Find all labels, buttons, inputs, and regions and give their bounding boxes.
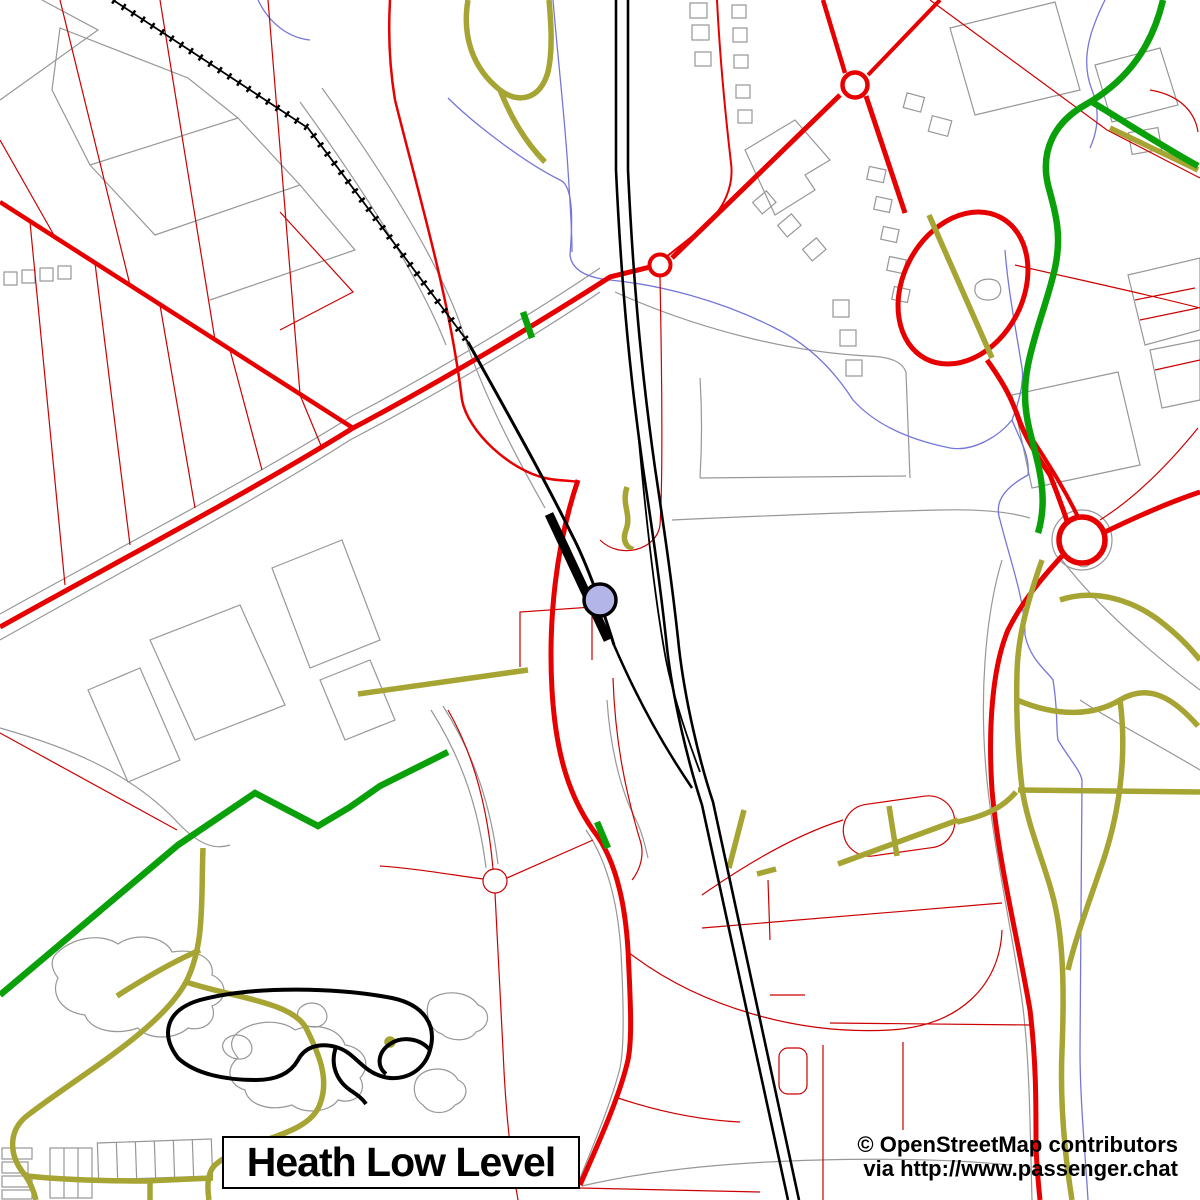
railway-layer	[113, 0, 799, 1200]
mini-roundabout	[650, 255, 671, 276]
road-northwest	[0, 202, 353, 428]
map-canvas[interactable]	[0, 0, 1200, 1200]
map-title-box: Heath Low Level	[222, 1136, 580, 1189]
map-viewport[interactable]: Heath Low Level © OpenStreetMap contribu…	[0, 0, 1200, 1200]
greenhouse-row	[97, 1139, 212, 1180]
green-path-layer	[0, 0, 1198, 995]
road-king-george-v-drive	[0, 267, 650, 627]
roundabout-east	[1059, 517, 1105, 563]
map-attribution: © OpenStreetMap contributors via http://…	[857, 1133, 1178, 1181]
attribution-line-2: via http://www.passenger.chat	[857, 1157, 1178, 1181]
map-title-label: Heath Low Level	[247, 1139, 556, 1186]
attribution-line-1: © OpenStreetMap contributors	[857, 1133, 1178, 1157]
roundabout-north	[843, 73, 868, 98]
railway-station-marker[interactable]	[584, 584, 616, 616]
